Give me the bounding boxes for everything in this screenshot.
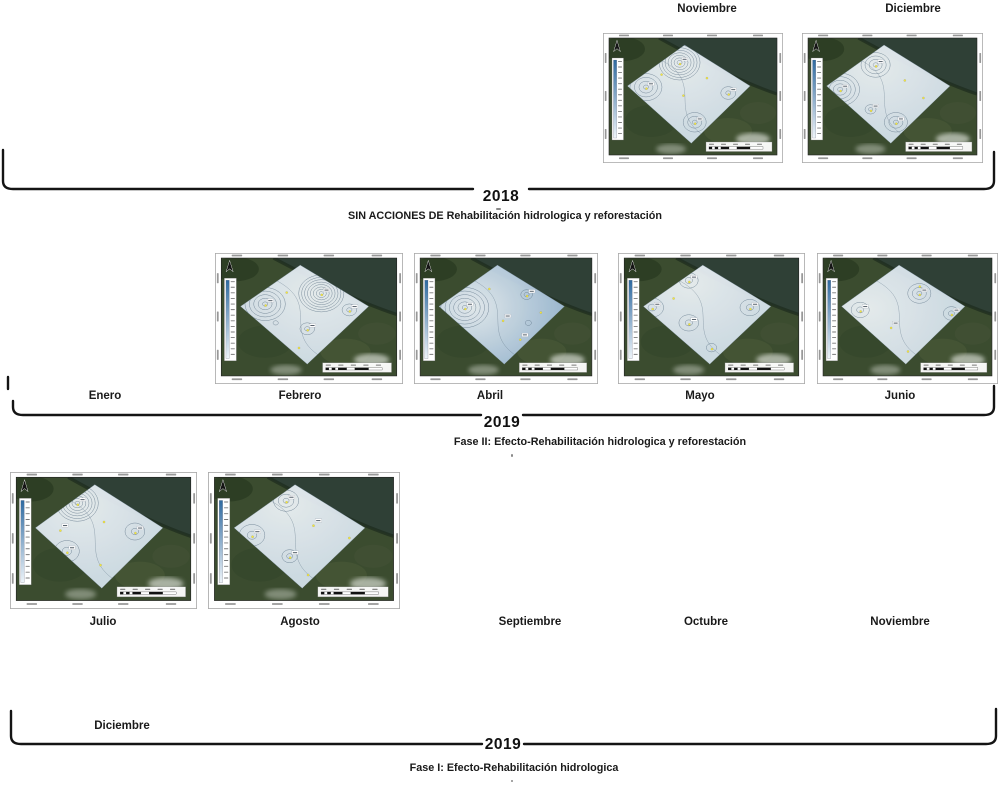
map-panel-may2019 <box>618 253 805 384</box>
phase-label-1: Fase II: Efecto-Rehabilitación hidrologi… <box>454 436 746 448</box>
scale-bar <box>323 363 392 373</box>
month-label-12: Diciembre <box>94 720 150 732</box>
elevation-legend-colorbar <box>224 278 236 361</box>
satellite-contour-map <box>208 472 400 609</box>
month-label-5: Mayo <box>685 390 714 402</box>
scale-bar <box>906 142 972 152</box>
elevation-legend-colorbar <box>423 278 435 361</box>
elevation-legend-colorbar <box>811 58 823 140</box>
month-label-9: Septiembre <box>499 616 562 628</box>
month-label-8: Agosto <box>280 616 320 628</box>
month-label-1: Diciembre <box>885 3 941 15</box>
month-label-0: Noviembre <box>677 3 736 15</box>
scale-bar <box>725 363 794 373</box>
month-label-4: Abril <box>477 390 503 402</box>
phase-label-2: Fase I: Efecto-Rehabilitación hidrologic… <box>410 762 619 774</box>
scale-bar <box>519 363 586 373</box>
satellite-contour-map <box>817 253 998 384</box>
stray-mark-2 <box>511 780 513 782</box>
map-panel-feb2019 <box>215 253 403 384</box>
stray-mark-0 <box>496 208 501 210</box>
month-label-2: Enero <box>89 390 122 402</box>
scale-bar <box>117 587 186 597</box>
year-label-0: 2018 <box>483 188 519 206</box>
map-panel-jun2019 <box>817 253 998 384</box>
stray-mark-1 <box>511 454 513 457</box>
map-panel-jul2019 <box>10 472 197 609</box>
elevation-legend-colorbar <box>826 278 838 361</box>
month-label-7: Julio <box>90 616 117 628</box>
map-panel-dic2018 <box>802 33 983 163</box>
figure-canvas: NoviembreDiciembreEneroFebreroAbrilMayoJ… <box>0 0 1004 789</box>
satellite-contour-map <box>802 33 983 163</box>
year-label-2: 2019 <box>485 736 521 754</box>
elevation-legend-colorbar <box>19 498 31 584</box>
satellite-contour-map <box>414 253 598 384</box>
satellite-contour-map <box>10 472 197 609</box>
scale-bar <box>318 587 388 597</box>
elevation-legend-colorbar <box>612 58 624 140</box>
map-panel-abr2019 <box>414 253 598 384</box>
elevation-legend-colorbar <box>218 498 230 584</box>
scale-bar <box>921 363 987 373</box>
month-label-11: Noviembre <box>870 616 929 628</box>
year-label-1: 2019 <box>484 414 520 432</box>
map-panel-nov2018 <box>603 33 783 163</box>
phase-label-0: SIN ACCIONES DE Rehabilitación hidrologi… <box>348 210 662 222</box>
satellite-contour-map <box>603 33 783 163</box>
month-label-6: Junio <box>885 390 916 402</box>
elevation-legend-colorbar <box>627 278 639 361</box>
map-panel-ago2019 <box>208 472 400 609</box>
satellite-contour-map <box>618 253 805 384</box>
month-label-10: Octubre <box>684 616 728 628</box>
month-label-3: Febrero <box>279 390 322 402</box>
satellite-contour-map <box>215 253 403 384</box>
scale-bar <box>706 142 772 152</box>
